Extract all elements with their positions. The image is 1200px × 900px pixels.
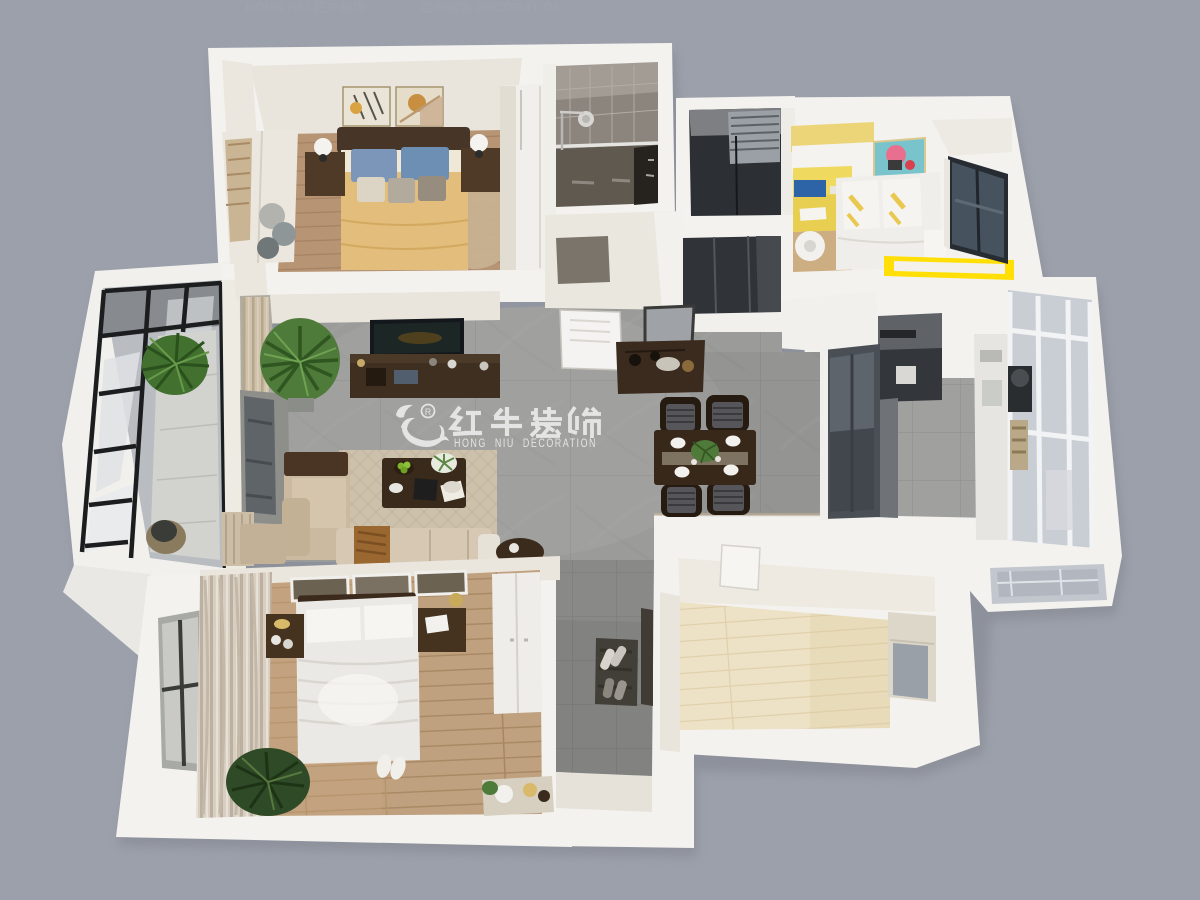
svg-text:HONG NIU 红牛装饰: HONG NIU 红牛装饰 — [245, 0, 366, 15]
svg-text:R: R — [425, 407, 432, 417]
svg-text:红牛装饰 DECORATION: 红牛装饰 DECORATION — [420, 0, 562, 15]
svg-text:HONG NIU DECORATION: HONG NIU DECORATION — [454, 438, 597, 450]
